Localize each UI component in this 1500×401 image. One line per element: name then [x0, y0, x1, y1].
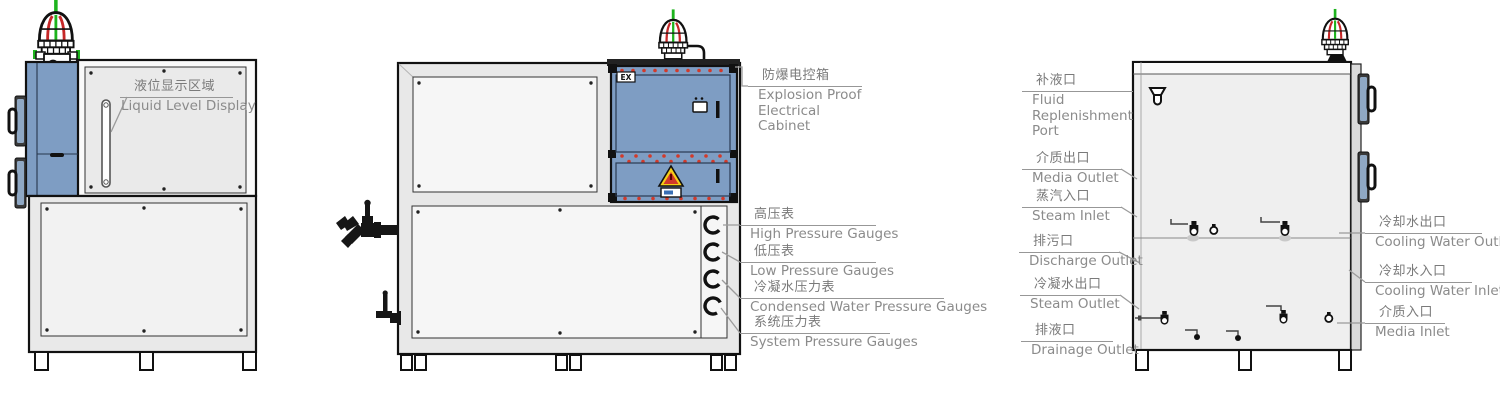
callout-en: Liquid Level Display	[120, 98, 233, 115]
callout-condensed-water-outlet: 冷凝水出口 Steam Outlet	[1020, 277, 1120, 313]
callout-drainage-outlet: 排液口 Drainage Outlet	[1021, 323, 1113, 359]
callout-cooling-water-outlet: 冷却水出口 Cooling Water Outlet	[1365, 215, 1482, 251]
callout-low-pressure-gauges: 低压表 Low Pressure Gauges	[740, 244, 876, 280]
signal-beacon-icon	[659, 9, 688, 58]
machine-right-side-view	[1133, 9, 1375, 370]
side-electrical-cabinet	[26, 62, 78, 196]
callout-system-pressure-gauges: 系统压力表 System Pressure Gauges	[740, 315, 890, 351]
callout-explosion-proof-electrical-cabinet: 防爆电控箱 Explosion Proof Electrical Cabinet	[748, 68, 862, 135]
signal-beacon-icon	[1322, 9, 1348, 55]
callout-zh: 高压表	[740, 207, 876, 226]
valve-assembly-icon	[336, 200, 399, 248]
callout-media-inlet: 介质入口 Media Inlet	[1365, 305, 1445, 341]
cabinet-latch-icon	[9, 96, 26, 146]
callout-liquid-level-display: 液位显示区域 Liquid Level Display	[120, 79, 233, 115]
liquid-level-sight-glass	[102, 100, 110, 187]
callout-en: Fluid Replenishment Port	[1022, 92, 1128, 140]
cabinet-latch-icon	[1358, 152, 1375, 202]
callout-zh: 介质出口	[1022, 151, 1122, 170]
cabinet-latch-icon	[9, 158, 26, 208]
callout-en: Media Outlet	[1022, 170, 1122, 187]
beacon-conduit	[688, 46, 704, 59]
machine-legs	[401, 355, 736, 370]
right-body-panel	[1133, 62, 1351, 350]
callout-en: Drainage Outlet	[1021, 342, 1113, 359]
callout-zh: 冷却水入口	[1365, 264, 1472, 283]
machine-left-side-view	[9, 0, 256, 370]
callout-en: Media Inlet	[1365, 324, 1445, 341]
top-strip	[1134, 63, 1350, 74]
callout-zh: 介质入口	[1365, 305, 1445, 324]
callout-en: Condensed Water Pressure Gauges	[740, 299, 944, 316]
callout-zh: 防爆电控箱	[748, 68, 862, 87]
callout-en: System Pressure Gauges	[740, 334, 890, 351]
callout-en: Explosion Proof Electrical Cabinet	[748, 87, 862, 135]
callout-zh: 系统压力表	[740, 315, 890, 334]
ex-marking: EX	[617, 72, 635, 82]
callout-zh: 排液口	[1021, 323, 1113, 342]
callout-steam-inlet: 蒸汽入口 Steam Inlet	[1022, 189, 1122, 225]
svg-text:EX: EX	[621, 73, 632, 82]
lower-inner-panel	[41, 203, 247, 336]
front-upper-panel	[413, 77, 597, 192]
callout-en: High Pressure Gauges	[740, 226, 876, 243]
door-handle	[716, 169, 720, 183]
callout-fluid-replenishment-port: 补液口 Fluid Replenishment Port	[1022, 73, 1133, 140]
callout-discharge-outlet: 排污口 Discharge Outlet	[1019, 234, 1120, 270]
callout-high-pressure-gauges: 高压表 High Pressure Gauges	[740, 207, 876, 243]
callout-zh: 冷凝水出口	[1020, 277, 1120, 296]
explosion-proof-electrical-cabinet: EX	[607, 59, 740, 202]
cabinet-latch-icon	[1358, 74, 1375, 124]
front-lower-panel	[412, 206, 701, 338]
callout-en: Discharge Outlet	[1019, 253, 1120, 270]
callout-zh: 冷却水出口	[1365, 215, 1482, 234]
callout-zh: 排污口	[1019, 234, 1120, 253]
callout-en: Cooling Water Inlet	[1365, 283, 1472, 300]
callout-zh: 低压表	[740, 244, 876, 263]
callout-zh: 补液口	[1022, 73, 1133, 92]
machine-front-view: EX	[336, 9, 740, 370]
callout-zh: 冷凝水压力表	[740, 280, 944, 299]
machine-legs	[1136, 350, 1351, 370]
diagram-canvas: EX	[0, 0, 1500, 401]
callout-en: Steam Inlet	[1022, 208, 1122, 225]
callout-en: Low Pressure Gauges	[740, 263, 876, 280]
callout-media-outlet: 介质出口 Media Outlet	[1022, 151, 1122, 187]
machine-legs	[35, 352, 256, 370]
callout-en: Cooling Water Outlet	[1365, 234, 1482, 251]
callout-en: Steam Outlet	[1020, 296, 1120, 313]
warning-label	[661, 188, 681, 197]
callout-zh: 液位显示区域	[120, 79, 233, 98]
callout-condensed-water-pressure-gauges: 冷凝水压力表 Condensed Water Pressure Gauges	[740, 280, 944, 316]
callout-zh: 蒸汽入口	[1022, 189, 1122, 208]
door-handle	[716, 101, 720, 118]
callout-cooling-water-inlet: 冷却水入口 Cooling Water Inlet	[1365, 264, 1472, 300]
